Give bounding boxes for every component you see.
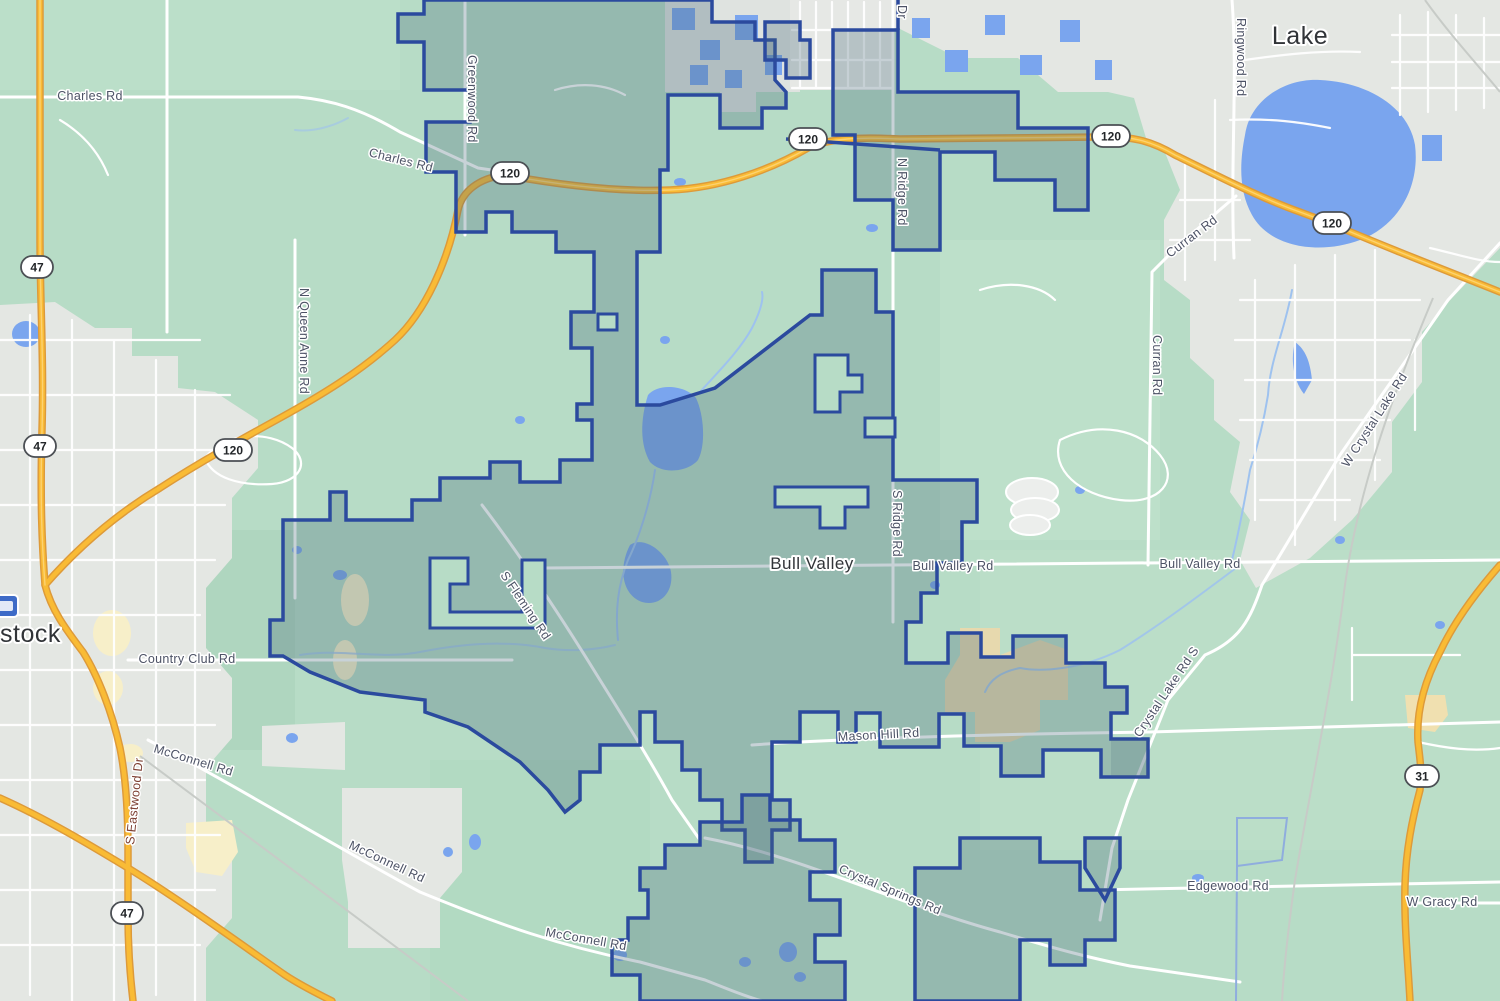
bull-valley-rd-label-2: Bull Valley Rd: [1159, 557, 1240, 571]
blue-route-marker: [0, 595, 18, 617]
svg-text:47: 47: [30, 261, 44, 275]
route-120-shield-2: 120: [214, 439, 252, 461]
ringwood-rd-label: Ringwood Rd: [1234, 18, 1248, 96]
route-120-shield-3: 120: [789, 128, 827, 150]
n-ridge-rd-label: N Ridge Rd: [895, 158, 909, 226]
svg-text:120: 120: [1101, 130, 1121, 144]
route-120-shield: 120: [491, 162, 529, 184]
queen-anne-rd-label: N Queen Anne Rd: [297, 288, 311, 394]
bull-valley-rd-label: Bull Valley Rd: [912, 559, 993, 573]
urban-woodstock-small: [262, 722, 345, 770]
dr-partial-label: Dr: [895, 5, 909, 19]
svg-text:120: 120: [223, 444, 243, 458]
route-47-shield-3: 47: [111, 902, 143, 924]
svg-text:120: 120: [1322, 217, 1342, 231]
lake-label: Lake: [1272, 22, 1328, 50]
route-120-shield-5: 120: [1313, 212, 1351, 234]
country-club-rd-label: Country Club Rd: [139, 652, 236, 666]
edgewood-rd-label: Edgewood Rd: [1187, 879, 1269, 893]
svg-text:47: 47: [120, 907, 134, 921]
woodstock-label: stock: [0, 620, 61, 648]
map-canvas[interactable]: Charles Rd Charles Rd Greenwood Rd N Que…: [0, 0, 1500, 1001]
route-47-shield: 47: [21, 256, 53, 278]
w-gracy-rd-label: W Gracy Rd: [1406, 895, 1477, 909]
charles-rd-label: Charles Rd: [57, 89, 123, 103]
route-31-shield: 31: [1405, 765, 1439, 787]
route-47-shield-2: 47: [24, 435, 56, 457]
greenwood-rd-label: Greenwood Rd: [465, 55, 479, 143]
svg-text:31: 31: [1415, 770, 1429, 784]
map-viewport: Charles Rd Charles Rd Greenwood Rd N Que…: [0, 0, 1500, 1001]
svg-text:47: 47: [33, 440, 47, 454]
curran-rd-label-2: Curran Rd: [1150, 335, 1164, 395]
route-120-shield-4: 120: [1092, 125, 1130, 147]
svg-text:120: 120: [798, 133, 818, 147]
s-ridge-rd-label: S Ridge Rd: [890, 490, 904, 557]
svg-text:120: 120: [500, 167, 520, 181]
bull-valley-label: Bull Valley: [770, 554, 854, 573]
